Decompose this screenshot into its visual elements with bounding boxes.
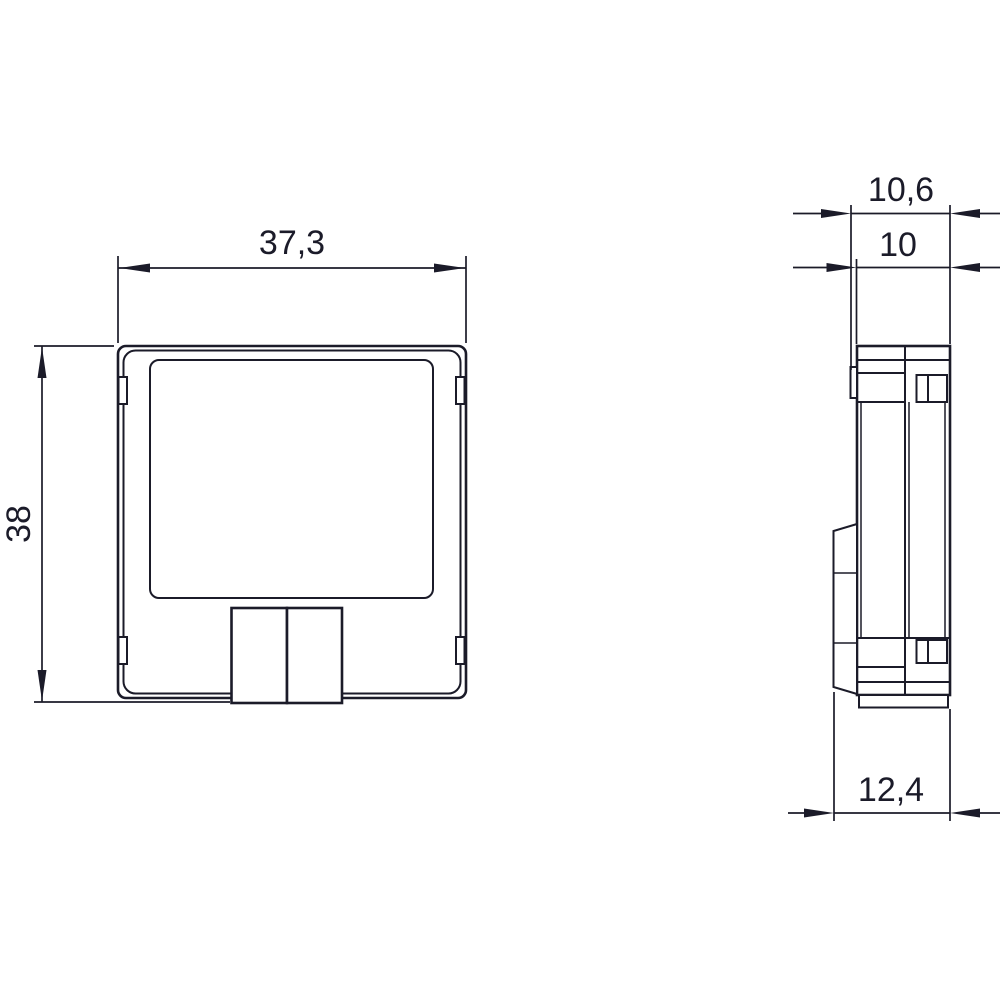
side-latch-bottom [917,640,948,663]
front-latch-bottom-right [456,637,465,664]
arrowhead-left [821,209,851,218]
dimension-side-depth-overall: 10,6 [793,171,1000,370]
arrowhead-left [119,264,150,273]
arrowhead-bottom [38,670,47,701]
side-front-lip [851,367,858,398]
dimension-side-depth-body: 10 [793,226,1000,344]
arrowhead-top [38,347,47,378]
side-view [834,346,951,708]
front-rocker-face [150,360,433,598]
front-latch-bottom-left [119,637,128,664]
dim-front-width-label: 37,3 [259,224,325,262]
dimension-front-height: 38 [0,346,230,702]
front-terminal-tabs [232,608,343,703]
arrowhead-right [950,263,980,272]
side-din-clip-outline [834,524,858,694]
front-latch-top-right [456,377,465,404]
side-din-clip [834,524,858,694]
dimension-front-width: 37,3 [118,224,466,343]
side-latch-bottom-body [917,640,948,663]
front-terminal-tab-left [232,608,288,703]
front-terminal-tab-right [287,608,342,703]
front-latch-top-left [119,377,128,404]
technical-drawing: 37,3 38 [0,0,1000,1000]
arrowhead-right [434,264,465,273]
side-latch-top [917,375,948,402]
technical-drawing-canvas: 37,3 38 [0,0,1000,1000]
side-terminal-tab [859,695,948,708]
arrowhead-left [804,809,834,818]
dim-side-body-label: 10 [879,226,917,264]
arrowhead-right [950,809,980,818]
dim-side-bottom-label: 12,4 [858,771,924,809]
arrowhead-right [950,209,980,218]
dim-side-overall-label: 10,6 [868,171,934,209]
side-latch-top-body [917,375,948,402]
arrowhead-left [827,263,857,272]
dimension-side-depth-bottom: 12,4 [788,692,1000,821]
dim-front-height-label: 38 [0,505,38,543]
